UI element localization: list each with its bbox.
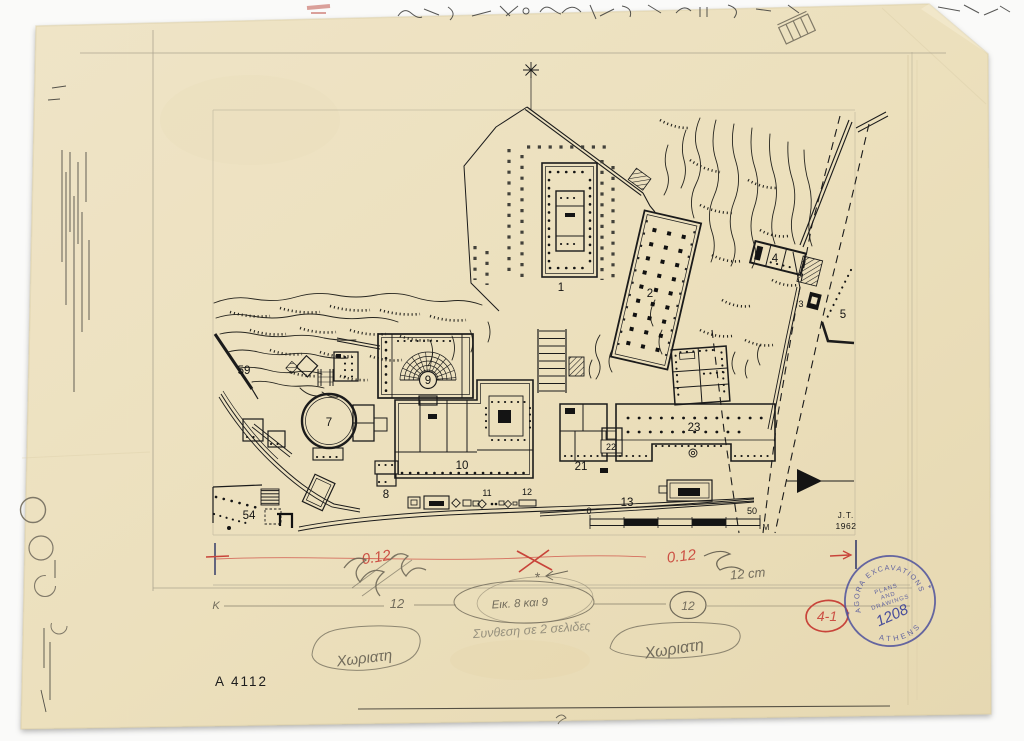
pencil-12-circled: 12	[681, 599, 695, 613]
scale-fifty: 50	[747, 506, 757, 516]
building-label-22: 22	[606, 442, 616, 452]
scanned-plan-page: 1 2 59	[0, 0, 1024, 741]
scale-unit: M	[763, 523, 770, 532]
red-scale-note-right: 0.12	[666, 546, 698, 567]
building-label-11: 11	[482, 488, 491, 498]
building-label-59: 59	[238, 365, 251, 377]
pencil-cm-note: 12 cm	[729, 564, 766, 582]
building-label-9: 9	[425, 375, 431, 387]
credit-year: 1962	[836, 521, 857, 531]
building-label-23: 23	[688, 422, 701, 434]
building-label-12: 12	[522, 487, 532, 497]
pencil-12: 12	[390, 596, 405, 611]
hatched-altar	[569, 357, 584, 376]
credit-initials: J.T.	[838, 511, 854, 520]
building-label-7: 7	[326, 417, 332, 429]
building-label-5: 5	[840, 309, 846, 321]
building-label-3: 3	[798, 299, 803, 309]
red-tick-left	[206, 556, 229, 557]
catalog-number: A 4112	[215, 674, 268, 689]
building-label-4: 4	[772, 253, 779, 265]
building-label-21: 21	[575, 461, 588, 473]
building-label-8: 8	[383, 489, 389, 501]
building-label-13: 13	[621, 497, 634, 509]
paper-sheet	[21, 4, 991, 729]
pencil-k-mark: K	[212, 600, 220, 612]
draughtsman-credit: J.T. 1962	[836, 511, 857, 531]
building-label-2: 2	[647, 288, 653, 300]
building-label-10: 10	[456, 460, 469, 472]
scale-zero: 0	[586, 506, 591, 516]
building-label-1: 1	[558, 282, 564, 294]
building-label-54: 54	[243, 510, 256, 522]
agora-site-plan-sheet: 1 2 59	[0, 0, 1024, 741]
svg-text:4-1: 4-1	[817, 608, 837, 624]
